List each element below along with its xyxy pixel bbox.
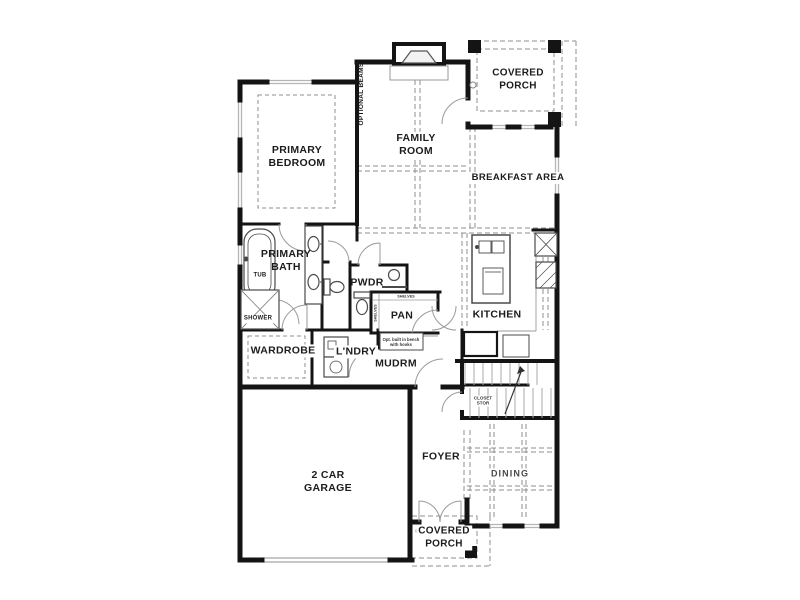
sink-icon (382, 270, 407, 288)
powder-door-arc (358, 243, 380, 265)
mudroom-label: MUDRM (375, 357, 417, 370)
fireplace-icon (390, 44, 448, 80)
garage-door (262, 558, 390, 562)
stair-closet-door-arc (442, 392, 462, 412)
light-fixture-icon (470, 82, 476, 88)
toilet-icon (324, 279, 344, 295)
pantry-label: PAN (391, 309, 413, 322)
water-closet-door-arc (328, 241, 349, 262)
stairs-icon (465, 363, 551, 418)
covered-porch-lower-label: COVERED PORCH (416, 526, 472, 551)
range-icon (503, 335, 529, 357)
floor-plan: PRIMARY BEDROOM OPTIONAL BEAMS FAMILY RO… (0, 0, 800, 600)
porch-door-arc (442, 98, 468, 124)
breakfast-area-label: BREAKFAST AREA (470, 172, 567, 184)
laundry-label: L'NDRY (334, 345, 378, 358)
shelves-label: SHELVES (397, 295, 414, 300)
covered-porch-upper-label: COVERED PORCH (490, 68, 546, 93)
primary-bedroom-label: PRIMARY BEDROOM (269, 144, 326, 170)
cabinet-icon (536, 262, 556, 288)
foyer-label: FOYER (422, 450, 460, 463)
primary-bath-label: PRIMARY BATH (261, 248, 311, 274)
toilet-icon (354, 292, 370, 315)
family-room-label: FAMILY ROOM (394, 132, 437, 158)
bench-note-label: Opt. built in bench with hooks (383, 337, 420, 347)
kitchen-island-icon (472, 235, 510, 303)
powder-label: PWDR (350, 276, 383, 289)
kitchen-label: KITCHEN (473, 308, 522, 321)
corner-cabinet-icon (535, 233, 557, 256)
shower-icon (241, 290, 279, 329)
tub-label: TUB (254, 272, 267, 280)
refrigerator-icon (464, 332, 497, 356)
mudroom-door-arc (415, 359, 443, 387)
dining-label: DINING (489, 468, 531, 479)
wardrobe-door-arc (282, 305, 307, 330)
floor-plan-drawing (0, 0, 800, 600)
front-door-arcs (419, 501, 461, 522)
stair-closet-label: CLOSET STOR (472, 396, 494, 407)
garage-label: 2 CAR GARAGE (304, 469, 352, 495)
wardrobe-label: WARDROBE (249, 344, 318, 357)
shower-label: SHOWER (242, 315, 274, 323)
shelves-label: SHELVES (374, 304, 379, 321)
optional-beams-label: OPTIONAL BEAMS (358, 63, 366, 126)
